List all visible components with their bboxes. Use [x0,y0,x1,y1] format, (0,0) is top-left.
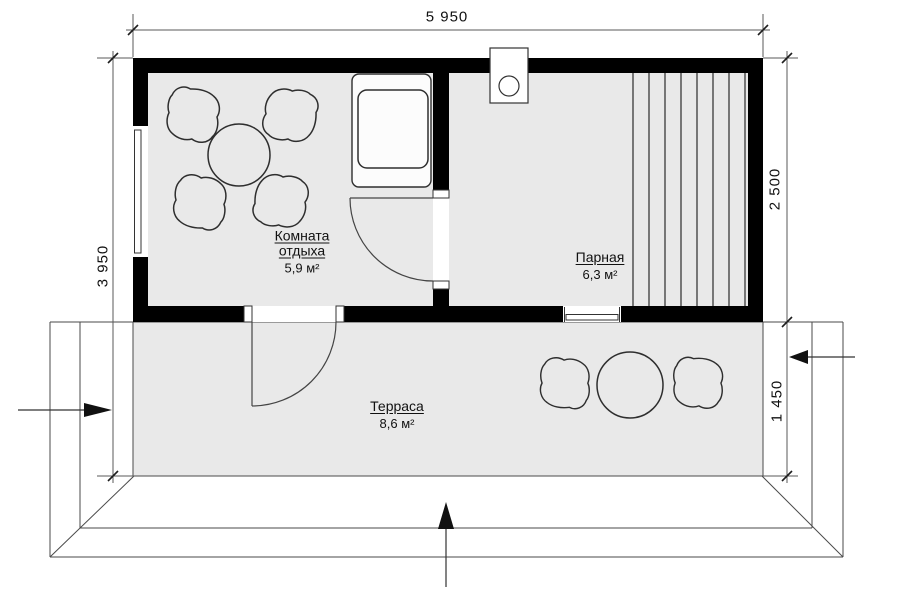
room-name: Комната [275,229,330,244]
entrance-arrow-left-icon [18,403,112,417]
dim-label-width-total: 5 950 [426,9,469,26]
dim-label-depth-terrace: 1 450 [769,380,786,423]
steam-room-label: Парная 6,3 м² [576,250,625,282]
sofa [352,74,431,187]
door-jamb [433,190,449,198]
room-name: отдыха [275,244,330,259]
room-area: 6,3 м² [576,267,625,282]
rest-room-label: Комната отдыха 5,9 м² [275,229,330,276]
terrace-floor [133,322,763,476]
room-area: 8,6 м² [370,416,424,431]
door-jamb [433,281,449,289]
dim-label-depth-main: 2 500 [767,168,784,211]
entrance-arrow-bottom-icon [438,502,454,587]
floor-plan-page: 5 950 3 950 2 500 1 450 Комната отдыха 5… [0,0,900,589]
dim-label-depth-total: 3 950 [95,245,112,288]
deck-miter-right [762,476,843,557]
room-area: 5,9 м² [275,261,330,276]
window-left [133,126,148,257]
stove-icon [490,48,528,103]
room-name: Парная [576,250,625,265]
terrace-label: Терраса 8,6 м² [370,399,424,431]
door-jamb [244,306,252,322]
door-jamb [336,306,344,322]
room-name: Терраса [370,399,424,414]
entrance-arrow-right-icon [789,350,855,364]
window-bottom [563,306,621,322]
deck-miter-left [50,476,134,557]
floor-plan-canvas [0,0,900,589]
